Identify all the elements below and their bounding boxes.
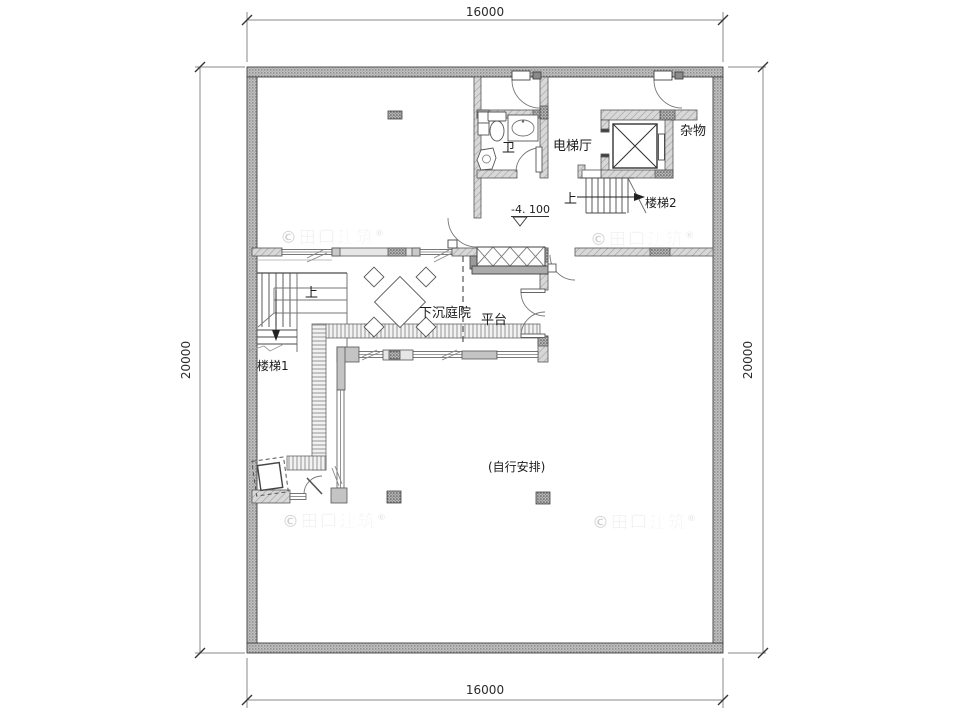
shelf [478, 112, 489, 123]
floor-plan-drawing: 16000 16000 20000 20000 [0, 0, 961, 722]
sink-counter [508, 115, 538, 141]
shelf [478, 123, 489, 135]
floor-plan-canvas: 16000 16000 20000 20000 [0, 0, 961, 722]
label-elevator-hall: 电梯厅 [553, 139, 592, 154]
window-walls [252, 347, 538, 503]
elevator-door-jamb [601, 154, 609, 157]
elevation-triangle-icon [513, 217, 527, 226]
label-up-stair2: 上 [564, 192, 577, 207]
label-self-arrange: (自行安排) [488, 459, 545, 474]
elevation-marker: -4. 100 [511, 203, 550, 226]
watermark: ©田口建筑® [590, 229, 696, 250]
dim-right-value: 20000 [741, 341, 755, 379]
faucet-icon [522, 120, 524, 122]
courtyard-band [287, 324, 540, 470]
label-sunken-courtyard: 下沉庭院 [419, 305, 471, 321]
front-window-wall [252, 248, 480, 269]
table-and-chairs [364, 267, 436, 337]
dimension-left [195, 62, 245, 658]
stair-1 [249, 273, 347, 352]
label-storage: 杂物 [680, 124, 706, 139]
watermark: ©田口建筑® [592, 512, 698, 533]
elevator-counterweight [659, 134, 665, 160]
dim-top-value: 16000 [466, 5, 504, 19]
label-platform: 平台 [481, 313, 507, 328]
column [388, 111, 402, 119]
table [375, 277, 426, 328]
elevator-door-jamb [601, 129, 609, 132]
watermark: ©田口建筑® [280, 227, 386, 248]
chair [416, 267, 436, 287]
label-up-stair1: 上 [305, 286, 318, 301]
casement-marks [307, 250, 460, 486]
label-stair1: 楼梯1 [257, 358, 289, 373]
toilet-bowl [490, 121, 504, 141]
stair1-direction-arrow-icon [272, 330, 280, 341]
dim-left-value: 20000 [179, 341, 193, 379]
column [536, 492, 550, 504]
courtyard-grate [472, 247, 548, 274]
dimension-top [242, 12, 728, 62]
elevator [601, 120, 673, 178]
label-bathroom: 卫 [502, 141, 515, 156]
toilet-tank [488, 112, 506, 121]
watermark: ©田口建筑® [282, 511, 388, 532]
dim-bottom-value: 16000 [466, 683, 504, 697]
chair [364, 267, 384, 287]
elevation-value: -4. 100 [511, 203, 550, 216]
column [387, 491, 401, 503]
label-stair2: 楼梯2 [645, 195, 677, 210]
